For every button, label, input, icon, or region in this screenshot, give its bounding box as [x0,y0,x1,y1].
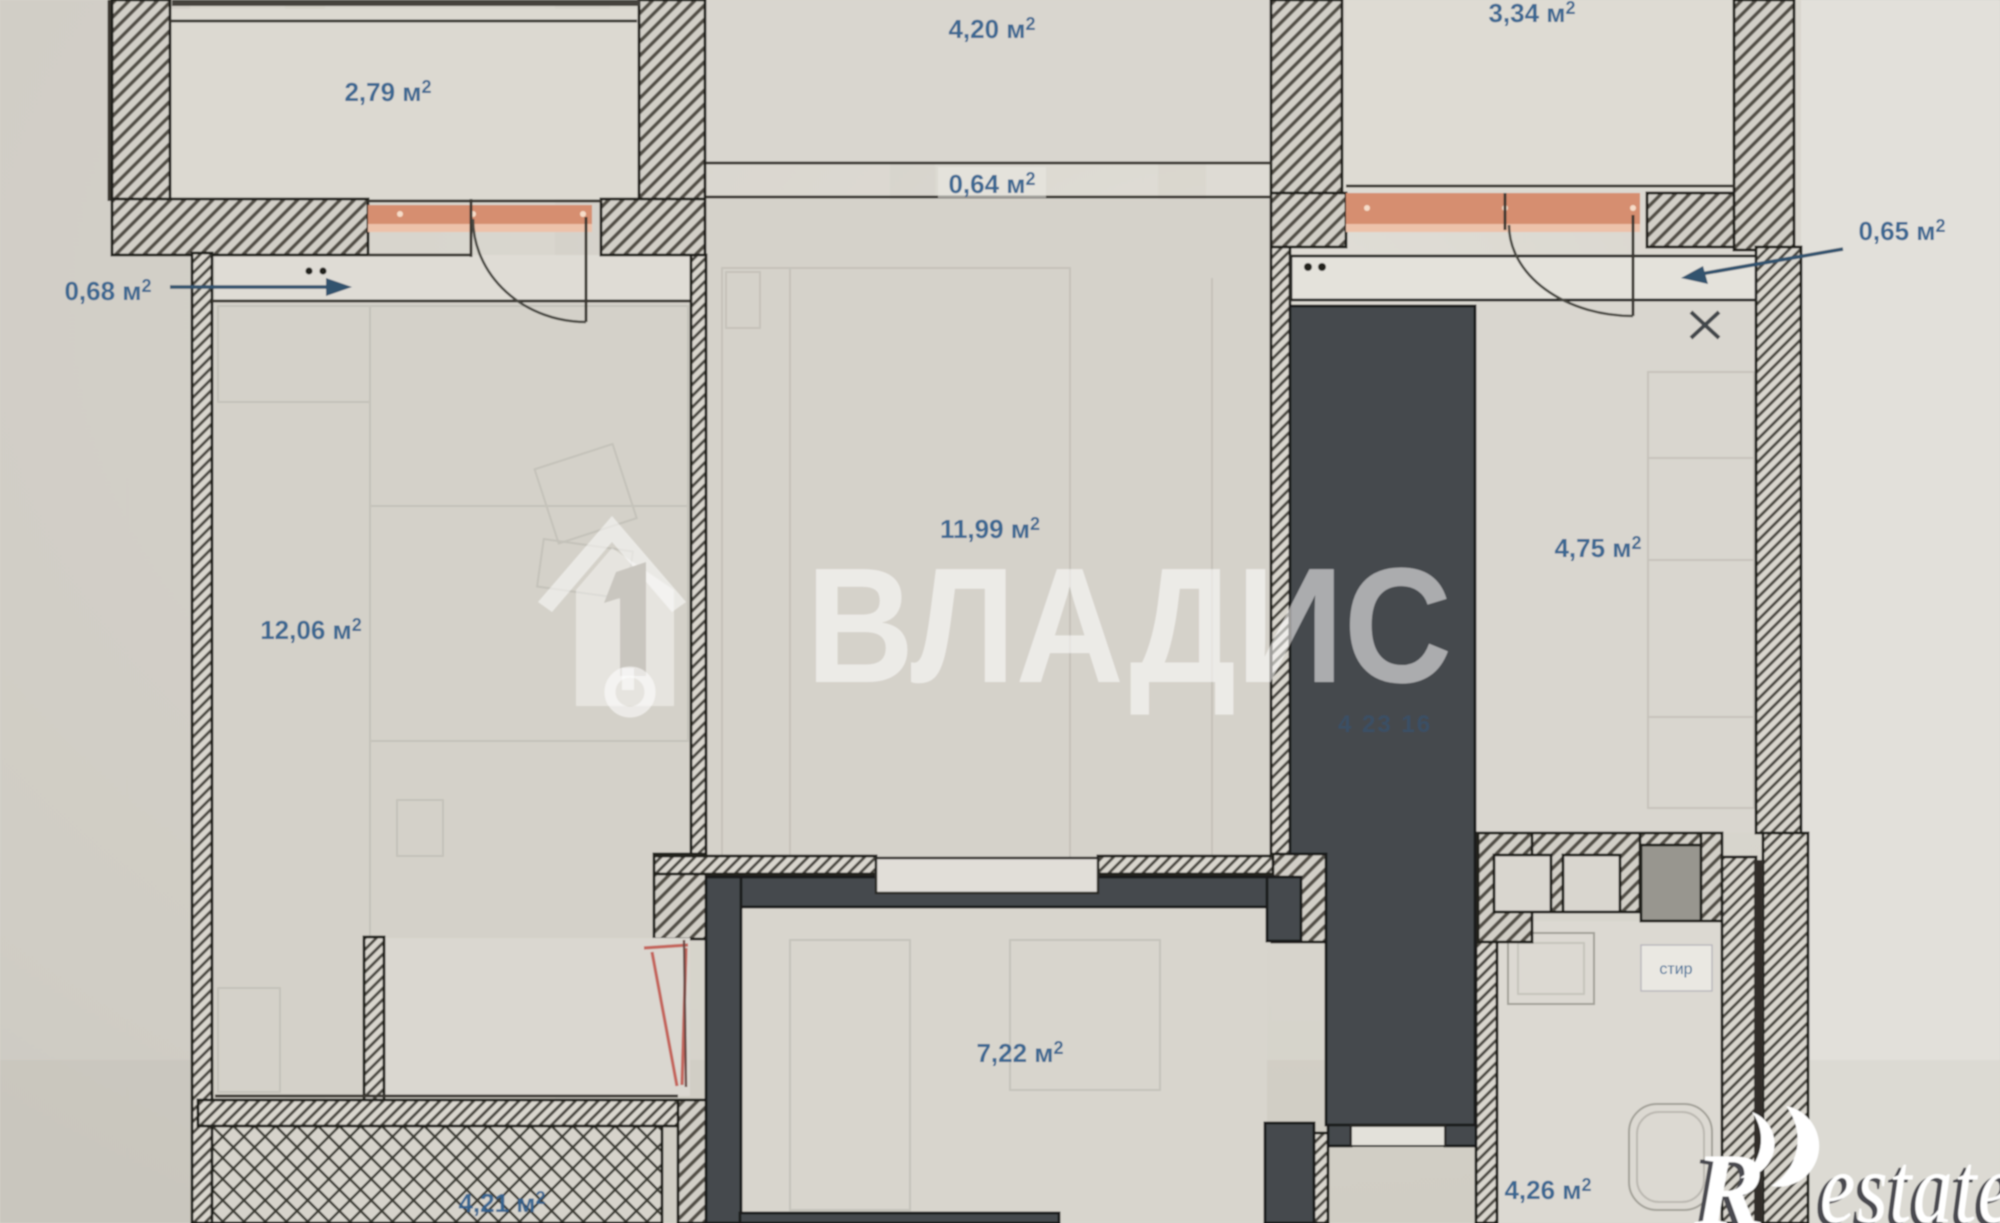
svg-text:2,79 м2: 2,79 м2 [344,77,431,107]
svg-text:4 23 16: 4 23 16 [1338,711,1432,738]
svg-text:7,22 м2: 7,22 м2 [976,1038,1063,1068]
svg-text:ВЛАДИС: ВЛАДИС [806,534,1452,717]
svg-text:12,06 м2: 12,06 м2 [260,615,362,645]
svg-text:4,75 м2: 4,75 м2 [1554,533,1641,563]
svg-text:R: R [1693,1132,1765,1223]
svg-text:4,21 м2: 4,21 м2 [458,1188,545,1218]
svg-text:0,65 м2: 0,65 м2 [1858,216,1945,246]
svg-text:стир: стир [1659,961,1692,978]
svg-text:3,34 м2: 3,34 м2 [1488,0,1575,28]
svg-text:0,64 м2: 0,64 м2 [948,169,1035,199]
svg-text:0,68 м2: 0,68 м2 [64,276,151,306]
svg-text:4,26 м2: 4,26 м2 [1504,1175,1591,1205]
svg-text:estate: estate [1820,1131,2000,1223]
svg-text:4,20 м2: 4,20 м2 [948,14,1035,44]
